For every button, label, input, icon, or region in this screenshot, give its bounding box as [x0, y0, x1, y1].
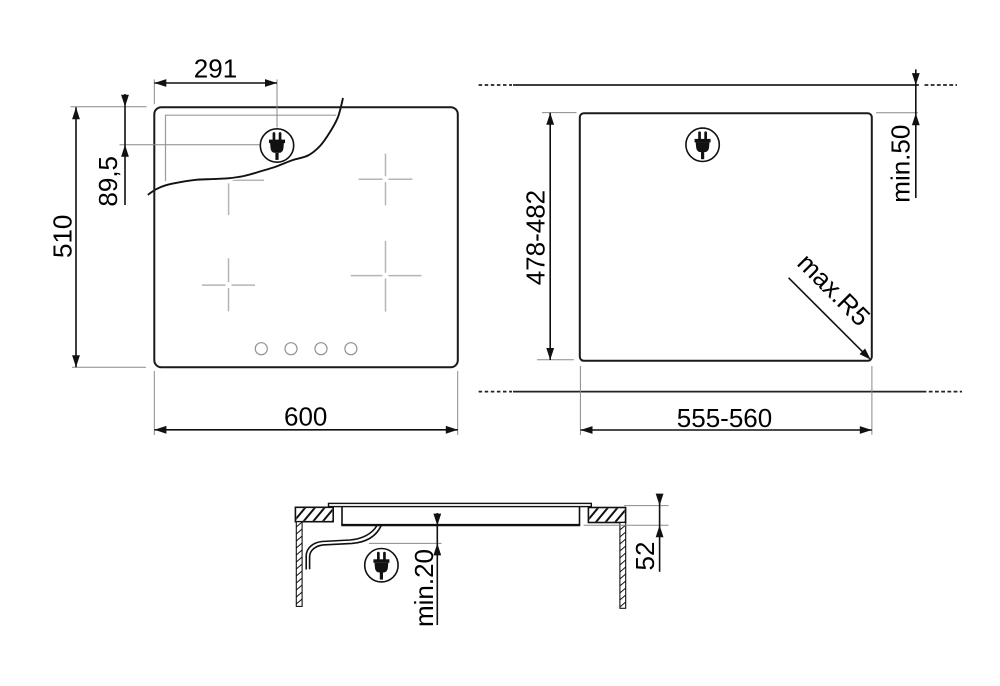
svg-text:291: 291 — [194, 54, 237, 84]
svg-text:89,5: 89,5 — [93, 156, 123, 207]
svg-text:min.50: min.50 — [886, 125, 916, 203]
svg-text:510: 510 — [48, 215, 78, 258]
svg-text:478-482: 478-482 — [521, 190, 551, 285]
svg-text:52: 52 — [630, 542, 660, 571]
svg-text:600: 600 — [284, 402, 327, 432]
svg-text:min.20: min.20 — [409, 549, 439, 627]
svg-text:max.R5: max.R5 — [792, 247, 877, 332]
svg-text:555-560: 555-560 — [677, 403, 772, 433]
